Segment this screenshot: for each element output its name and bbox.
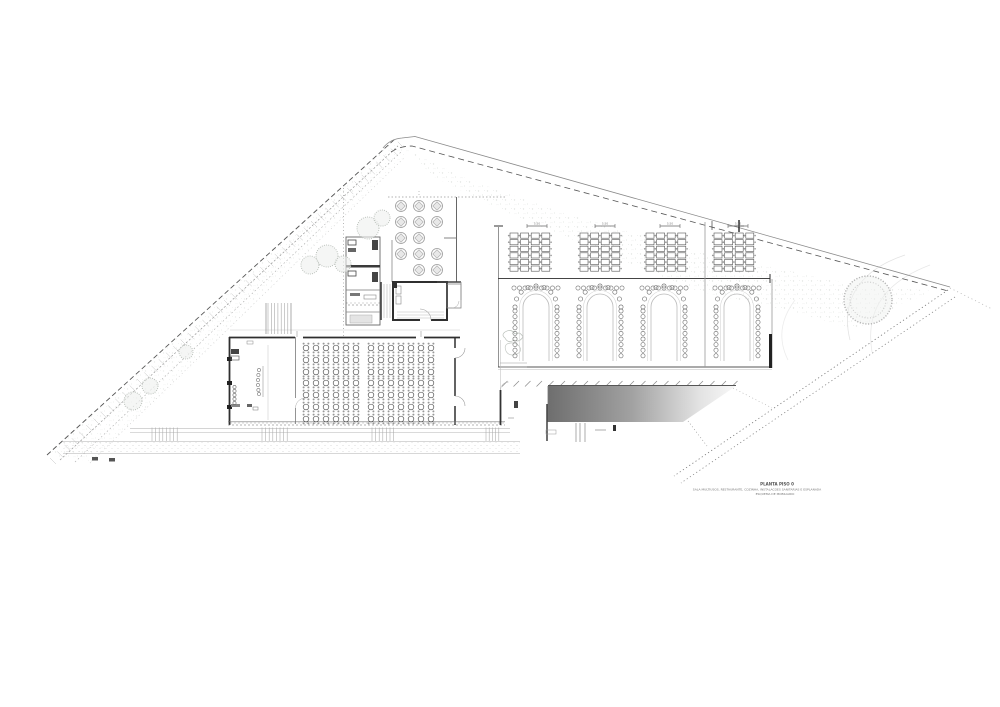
round-table [303,357,309,363]
chair-dot [323,422,325,424]
chair-dot [327,422,329,424]
bar-stool [256,383,259,386]
chair-dot [368,351,370,353]
chair-dot [733,235,735,237]
chair-dot [317,386,319,388]
chair-dot [676,241,678,243]
banquet-table [746,253,754,258]
chair-dot [337,402,339,404]
chair-dot [378,414,380,416]
banquet-table [510,246,518,251]
chair-dot [307,363,309,365]
chair-dot [382,367,384,369]
banquet-table [601,233,609,238]
chair-dot [327,398,329,400]
chair-dot [529,248,531,250]
tree-canopy [316,245,338,267]
chair-dot [644,268,646,270]
chair-dot [723,261,725,263]
chair [641,305,645,309]
chair-dot [333,390,335,392]
kitchen-fixture [396,296,401,304]
door-swing-arc [420,309,431,320]
banquet-table [591,240,599,245]
chair-dot [357,375,359,377]
chair-dot [723,268,725,270]
chair [683,305,687,309]
chair-dot [418,414,420,416]
chair-dot [317,378,319,380]
round-table [313,345,319,351]
chair [677,290,681,294]
round-table [428,416,434,422]
chair-dot [323,414,325,416]
chair [683,326,687,330]
chair-dot [418,410,420,412]
chair-dot [418,367,420,369]
edge-hatch-tick [537,381,543,387]
chair [513,326,517,330]
chair [641,343,645,347]
chair-dot [422,390,424,392]
chair-dot [317,363,319,365]
chair-dot [347,343,349,345]
chair [555,354,559,358]
chair-dot [368,375,370,377]
round-table [398,404,404,410]
chair-dot [317,398,319,400]
chair-dot [408,375,410,377]
chair-dot [578,235,580,237]
chair-dot [382,351,384,353]
chair-dot [432,390,434,392]
round-table [303,369,309,375]
round-table [353,357,359,363]
chair-dot [428,414,430,416]
round-table [398,369,404,375]
chair-dot [412,351,414,353]
round-table [418,369,424,375]
banquet-table [667,240,675,245]
chair [673,286,677,290]
chair-dot [323,375,325,377]
round-table [388,404,394,410]
chair-dot [347,414,349,416]
edge-hatch-tick [514,381,520,387]
chair-dot [372,363,374,365]
chair [513,320,517,324]
chair-dot [402,351,404,353]
chair [683,343,687,347]
chair-dot [408,367,410,369]
round-table [388,357,394,363]
chair [587,286,591,290]
round-table [333,369,339,375]
chair-dot [529,255,531,257]
chair [545,286,549,290]
banquet-table [591,259,599,264]
banquet-table [531,240,539,245]
bar-stool [257,373,260,376]
chair [756,320,760,324]
chair-dot [337,386,339,388]
chair-dot [432,410,434,412]
chair-dot [412,375,414,377]
chair [592,286,596,290]
chair-dot [744,255,746,257]
chair-dot [432,422,434,424]
chair-dot [388,363,390,365]
chair-dot [392,390,394,392]
chair-dot [540,261,542,263]
chair-dot [402,386,404,388]
parasol [433,218,441,226]
chair-dot [655,255,657,257]
chair-dot [508,261,510,263]
chair-dot [398,422,400,424]
chair-dot [303,363,305,365]
banquet-table [591,266,599,271]
chair-dot [428,343,430,345]
chair [684,286,688,290]
chair-dot [343,363,345,365]
round-table [368,392,374,398]
chair-dot [418,390,420,392]
banquet-table [746,266,754,271]
chair-dot [323,386,325,388]
chair-dot [303,410,305,412]
chair-dot [540,248,542,250]
chair [619,326,623,330]
chair-dot [388,378,390,380]
banquet-table [646,259,654,264]
chair-dot [378,351,380,353]
chair-dot [388,367,390,369]
chair-dot [378,378,380,380]
banquet-table [714,253,722,258]
chair-dot [712,255,714,257]
chair-dot [368,414,370,416]
chair-dot [408,402,410,404]
vegetation-band-slope [47,139,410,462]
round-table [388,369,394,375]
chair [619,354,623,358]
service-mark [364,295,376,299]
tree-canopy [142,378,158,394]
chair-dot [392,363,394,365]
banquet-table [657,246,665,251]
chair [619,331,623,335]
banquet-table [580,253,588,258]
chair-dot [398,375,400,377]
chair-dot [599,235,601,237]
chair [555,343,559,347]
chair-dot [382,378,384,380]
banquet-table [714,259,722,264]
chair-dot [723,248,725,250]
chair-dot [368,386,370,388]
chair-dot [398,414,400,416]
chair-dot [398,363,400,365]
chair-dot [422,422,424,424]
chair-dot [408,343,410,345]
chair-dot [353,355,355,357]
banquet-table [601,259,609,264]
chair-dot [343,367,345,369]
chair-dot [610,241,612,243]
service-closet [350,315,372,323]
u-table-inner [724,294,750,361]
chair [577,354,581,358]
chair [756,315,760,319]
chair-dot [412,378,414,380]
chair-dot [418,386,420,388]
chair-dot [327,402,329,404]
chair-dot [392,367,394,369]
round-table [428,369,434,375]
chair-dot [353,367,355,369]
chair-dot [327,343,329,345]
chair-dot [343,414,345,416]
chair [513,309,517,313]
chair-dot [398,367,400,369]
wc-fixture [372,240,378,250]
chair-dot [655,235,657,237]
chair-dot [754,268,756,270]
banquet-table [580,240,588,245]
chair-dot [357,343,359,345]
banquet-table [646,240,654,245]
door-swing-arc [455,348,465,358]
round-table [303,380,309,386]
road-connector [733,388,772,408]
chair-dot [402,390,404,392]
wc-stall [233,397,236,400]
chair [555,315,559,319]
chair-dot [333,375,335,377]
chair [756,309,760,313]
chair-dot [432,378,434,380]
banquet-table [735,246,743,251]
wc-fixture [348,240,356,245]
chair-dot [307,414,309,416]
chair-dot [428,422,430,424]
chair-dot [392,355,394,357]
chair-dot [398,355,400,357]
chair-dot [754,248,756,250]
banquet-table [667,233,675,238]
chair [645,286,649,290]
round-table [343,404,349,410]
chair-dot [388,422,390,424]
round-table [398,380,404,386]
chair-dot [357,402,359,404]
chair-dot [368,343,370,345]
chair-dot [422,386,424,388]
chair [641,331,645,335]
round-table [313,380,319,386]
chair-dot [428,402,430,404]
round-table [388,416,394,422]
chair [613,290,617,294]
chair-dot [665,261,667,263]
chair-dot [317,390,319,392]
chair-dot [378,386,380,388]
chair-dot [402,343,404,345]
banquet-table [714,266,722,271]
banquet-table [646,266,654,271]
chair [641,326,645,330]
road-edge [674,290,948,476]
banquet-table [521,266,529,271]
chair-dot [665,255,667,257]
chair [603,286,607,290]
banquet-table [678,266,686,271]
chair-dot [529,235,531,237]
banquet-table [667,246,675,251]
chair-dot [408,386,410,388]
chair-dot [313,386,315,388]
chair-dot [313,378,315,380]
chair-dot [529,261,531,263]
chair [667,286,671,290]
chair-dot [317,414,319,416]
chair-dot [432,386,434,388]
round-table [323,345,329,351]
banquet-table [667,253,675,258]
chair-dot [398,410,400,412]
banquet-table [678,259,686,264]
chair-dot [337,363,339,365]
chair-dot [723,241,725,243]
banquet-table [531,259,539,264]
chair-dot [357,355,359,357]
round-table [313,392,319,398]
round-table [398,416,404,422]
chair-dot [372,402,374,404]
round-table [398,392,404,398]
chair-dot [317,343,319,345]
chair [683,354,687,358]
road-connector [688,421,707,446]
chair [714,343,718,347]
chair-dot [432,351,434,353]
round-table [378,345,384,351]
chair-dot [402,378,404,380]
chair-dot [343,410,345,412]
chair-dot [610,255,612,257]
chair-dot [307,422,309,424]
chair-dot [303,351,305,353]
chair-dot [337,375,339,377]
chair [578,297,582,301]
banquet-table [725,246,733,251]
chair-dot [589,268,591,270]
chair-dot [620,248,622,250]
round-table [353,392,359,398]
chair-dot [307,402,309,404]
chair [714,348,718,352]
chair-dot [307,355,309,357]
wc-fixture [348,248,356,252]
tree-canopy [124,392,142,410]
round-table [408,369,414,375]
chair-dot [313,351,315,353]
chair [714,305,718,309]
chair [555,331,559,335]
wc-stall [233,389,236,392]
chair-dot [333,386,335,388]
chair-dot [408,351,410,353]
tree-canopy [335,256,351,272]
chair-dot [382,414,384,416]
banquet-table [542,240,550,245]
wc-fixture [348,271,356,276]
banquet-table [735,240,743,245]
chair-dot [368,402,370,404]
chair-dot [357,378,359,380]
floor-plan-drawing: 5.505.505.505.50 [0,0,1000,707]
chair-dot [337,414,339,416]
chair-dot [333,422,335,424]
chair [678,286,682,290]
chair-dot [313,355,315,357]
chair-dot [620,235,622,237]
chair-dot [347,398,349,400]
chair-dot [372,390,374,392]
chair-dot [408,363,410,365]
chair-dot [418,343,420,345]
chair-dot [744,235,746,237]
chair-dot [550,261,552,263]
chair-dot [412,410,414,412]
chair [715,297,719,301]
kitchen-corner-pier [393,282,397,288]
round-table [378,392,384,398]
round-table [378,404,384,410]
chair [756,305,760,309]
banquet-table [542,253,550,258]
round-table [408,380,414,386]
round-table [408,392,414,398]
chair [577,348,581,352]
chair [577,305,581,309]
banquet-table [678,253,686,258]
chair-dot [402,355,404,357]
chair-dot [357,398,359,400]
kitchen-annex-room [447,284,461,308]
bar-stool [257,368,260,371]
drawing-title: PLANTA PISO 0 [760,482,794,487]
chair-dot [313,363,315,365]
chair [550,286,554,290]
round-table [343,380,349,386]
parasol [397,202,405,210]
round-table [378,357,384,363]
chair-dot [327,375,329,377]
chair-dot [347,378,349,380]
chair-dot [418,378,420,380]
chair-dot [353,390,355,392]
round-table [303,416,309,422]
chair [553,297,557,301]
chair-dot [665,235,667,237]
chair-dot [402,398,404,400]
banquet-table [580,259,588,264]
chair [683,309,687,313]
round-table [313,404,319,410]
chair-dot [519,241,521,243]
